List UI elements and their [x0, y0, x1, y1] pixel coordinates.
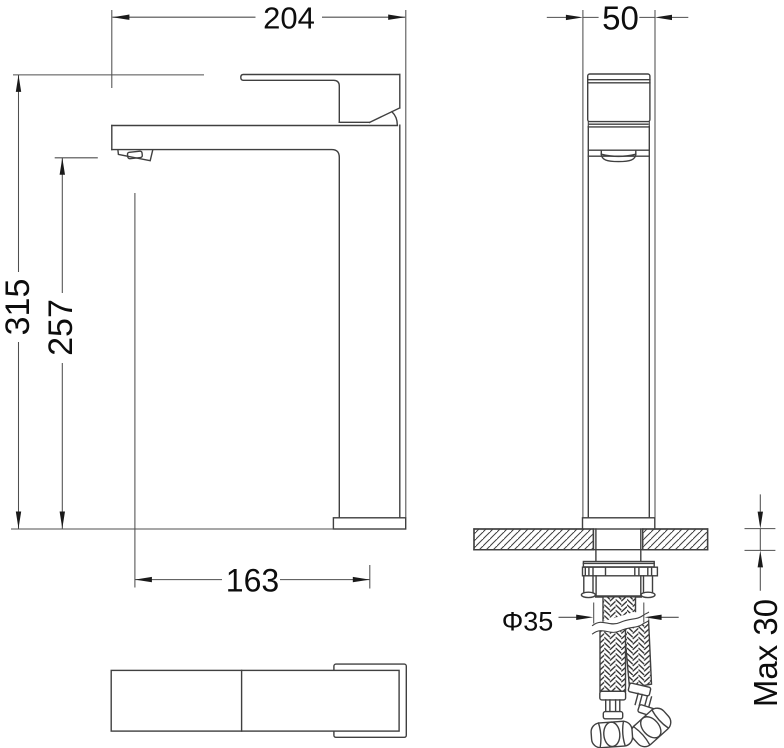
svg-text:257: 257	[42, 299, 80, 356]
svg-text:163: 163	[226, 563, 279, 599]
svg-text:Φ35: Φ35	[502, 607, 554, 637]
svg-text:204: 204	[263, 0, 315, 35]
svg-text:Max 30: Max 30	[747, 599, 784, 707]
svg-text:315: 315	[0, 279, 37, 336]
svg-text:50: 50	[602, 0, 639, 37]
